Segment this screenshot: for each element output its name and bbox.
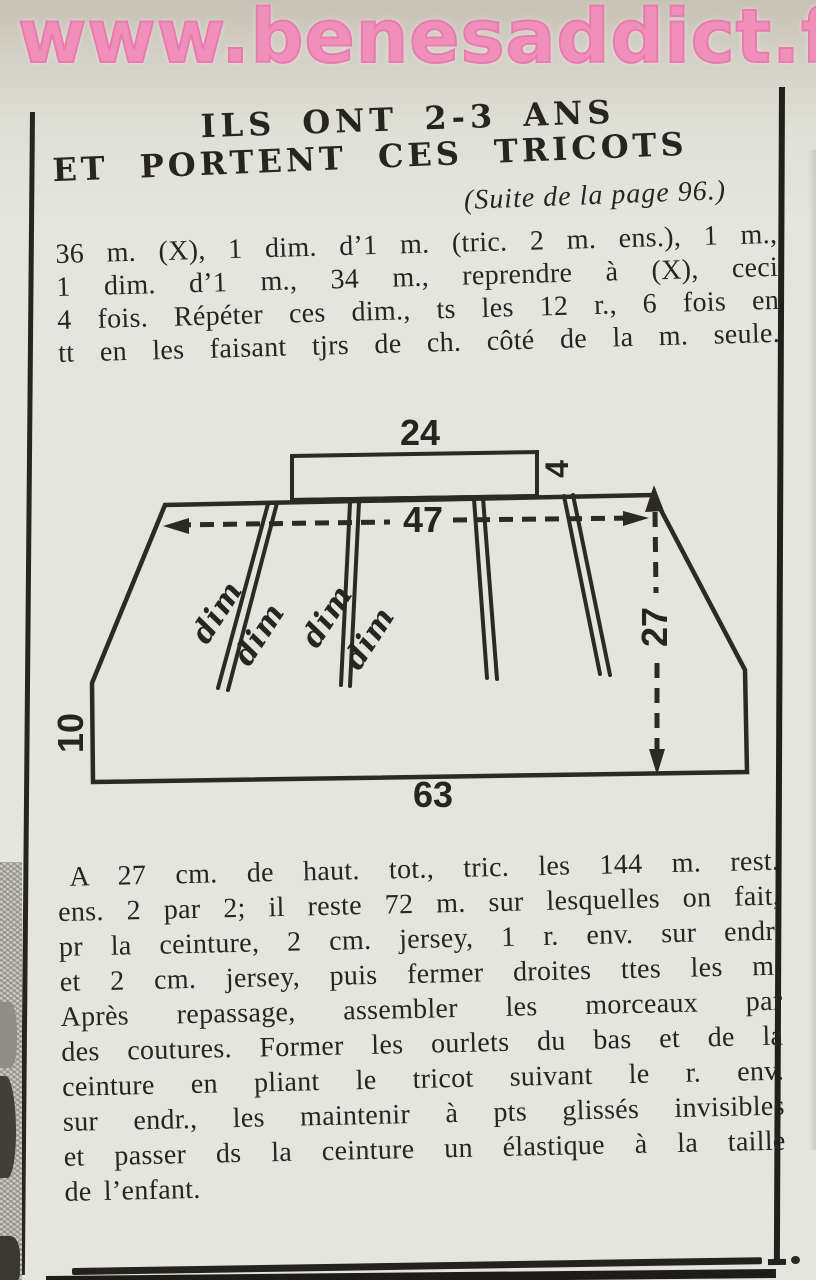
article-frame-left-border [20,112,35,1275]
bottom-rule-end-dash [768,1259,786,1265]
label-hem-height: 10 [50,713,91,753]
width-arrow-right-segment [453,518,635,520]
label-upper-width: 47 [403,499,443,540]
article-subtitle: (Suite de la page 96.) [415,173,776,219]
page-right-edge-shade [808,150,816,1150]
dart-line [564,496,600,674]
height-arrow-top-segment [655,512,656,593]
label-waistband-height: 4 [539,460,575,478]
bottom-rule-end-dot [791,1256,800,1264]
dart-line [573,495,610,675]
instructions-paragraph-1: 36 m. (X), 1 dim. d’1 m. (tric. 2 m. ens… [55,218,780,370]
label-side-height: 27 [634,607,675,647]
photo-strip-dark-blob [0,1236,20,1280]
arrowhead-left-icon [163,518,189,534]
photo-strip-gray-patch [0,1002,17,1068]
arrowhead-top-icon [645,485,664,512]
waistband-outline [292,452,537,500]
instructions-paragraph-2: A 27 cm. de haut. tot., tric. les 144 m.… [57,844,787,1210]
label-bottom-width: 63 [413,774,453,815]
label-waistband-width: 24 [400,412,440,453]
watermark-url: www.benesaddict.fr [18,0,802,80]
knitting-schematic: 24 4 47 27 10 63 dim dim dim dim [55,415,767,817]
scanned-magazine-page: www.benesaddict.fr ILS ONT 2-3 ANS ET PO… [0,0,816,1280]
arrowhead-right-icon [623,511,649,526]
left-page-edge-photo-strip [0,862,22,1280]
